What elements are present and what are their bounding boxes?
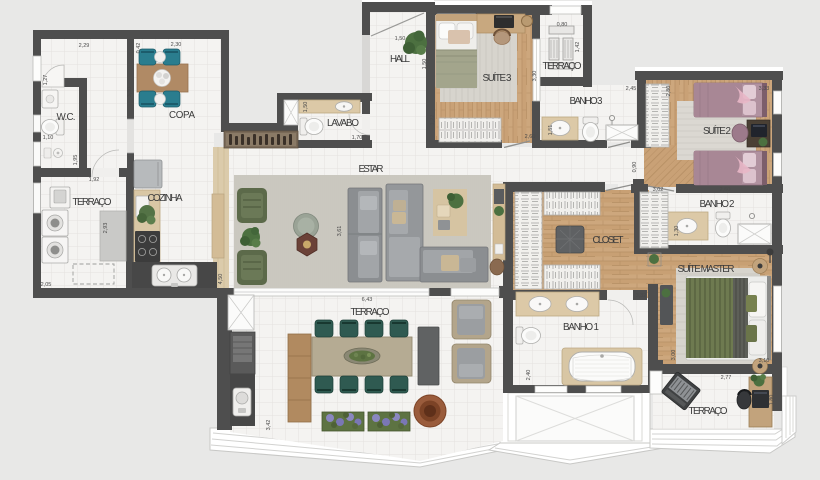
- svg-text:2,93: 2,93: [103, 223, 109, 234]
- svg-text:TERRAÇO: TERRAÇO: [351, 307, 390, 318]
- svg-text:3,10: 3,10: [759, 358, 770, 364]
- svg-text:1,22: 1,22: [430, 115, 436, 126]
- svg-text:1,50: 1,50: [422, 59, 428, 70]
- svg-text:3,33: 3,33: [759, 86, 770, 92]
- svg-text:1,42: 1,42: [575, 42, 581, 53]
- svg-text:TERRAÇO: TERRAÇO: [73, 197, 112, 208]
- svg-text:TERRAÇO: TERRAÇO: [689, 406, 728, 417]
- svg-text:1,92: 1,92: [89, 177, 100, 183]
- svg-text:2,60: 2,60: [720, 187, 731, 193]
- svg-text:COZINHA: COZINHA: [148, 193, 183, 204]
- svg-text:2,45: 2,45: [626, 86, 637, 92]
- svg-text:TERRAÇO: TERRAÇO: [543, 61, 582, 72]
- svg-text:1,10: 1,10: [43, 135, 54, 141]
- svg-text:0,80: 0,80: [557, 22, 568, 28]
- svg-text:6,43: 6,43: [362, 297, 373, 303]
- svg-text:2,80: 2,80: [666, 86, 672, 97]
- svg-text:ESTAR: ESTAR: [359, 164, 384, 175]
- svg-text:3,30: 3,30: [127, 87, 133, 98]
- svg-text:3,30: 3,30: [532, 71, 538, 82]
- svg-text:CLOSET: CLOSET: [593, 235, 624, 246]
- svg-text:3,00: 3,00: [671, 350, 677, 361]
- svg-text:BANHO 1: BANHO 1: [563, 322, 599, 333]
- svg-text:0,90: 0,90: [632, 162, 638, 173]
- svg-text:2,77: 2,77: [721, 375, 732, 381]
- svg-text:1,27: 1,27: [43, 75, 49, 86]
- svg-text:SUÍTE 2: SUÍTE 2: [703, 126, 731, 137]
- svg-text:W.C.: W.C.: [57, 112, 76, 123]
- svg-text:2,05: 2,05: [41, 282, 52, 288]
- svg-text:1,50: 1,50: [395, 36, 406, 42]
- svg-text:3,42: 3,42: [266, 420, 272, 431]
- svg-text:BANHO 3: BANHO 3: [570, 96, 604, 107]
- svg-text:0,42: 0,42: [136, 43, 142, 54]
- svg-text:2,40: 2,40: [526, 370, 532, 381]
- svg-text:SUÍTE MASTER: SUÍTE MASTER: [678, 264, 735, 275]
- svg-text:COPA: COPA: [169, 110, 195, 121]
- svg-text:1,51: 1,51: [548, 125, 554, 136]
- svg-text:SUÍTE 3: SUÍTE 3: [483, 73, 513, 84]
- svg-text:1,80: 1,80: [769, 395, 775, 406]
- svg-text:4,50: 4,50: [218, 274, 224, 285]
- svg-text:3,32: 3,32: [636, 293, 647, 299]
- svg-text:1,50: 1,50: [303, 102, 309, 113]
- svg-text:LAVABO: LAVABO: [327, 118, 359, 129]
- svg-text:2,30: 2,30: [171, 42, 182, 48]
- svg-text:1,70: 1,70: [352, 135, 363, 141]
- svg-text:BANHO 2: BANHO 2: [700, 199, 735, 210]
- svg-text:1,30: 1,30: [674, 226, 680, 237]
- svg-text:1,95: 1,95: [73, 155, 79, 166]
- svg-text:HALL: HALL: [390, 54, 411, 65]
- svg-text:2,60: 2,60: [525, 134, 536, 140]
- svg-text:2,29: 2,29: [79, 43, 90, 49]
- svg-text:3,61: 3,61: [337, 226, 343, 237]
- svg-text:3,02: 3,02: [653, 187, 664, 193]
